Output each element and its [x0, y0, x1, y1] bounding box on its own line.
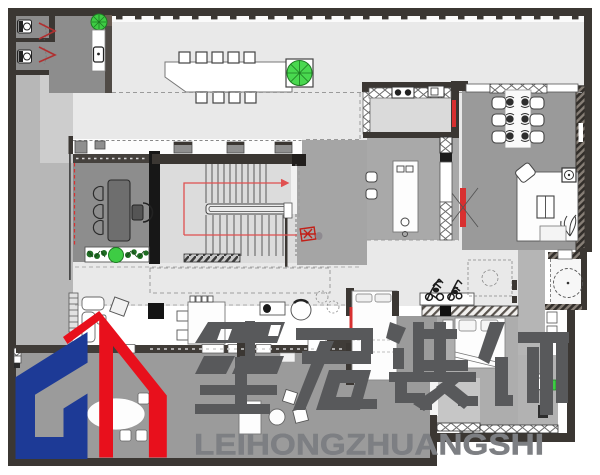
svg-text:LEIHONGZHUANGSHI: LEIHONGZHUANGSHI — [194, 429, 544, 462]
